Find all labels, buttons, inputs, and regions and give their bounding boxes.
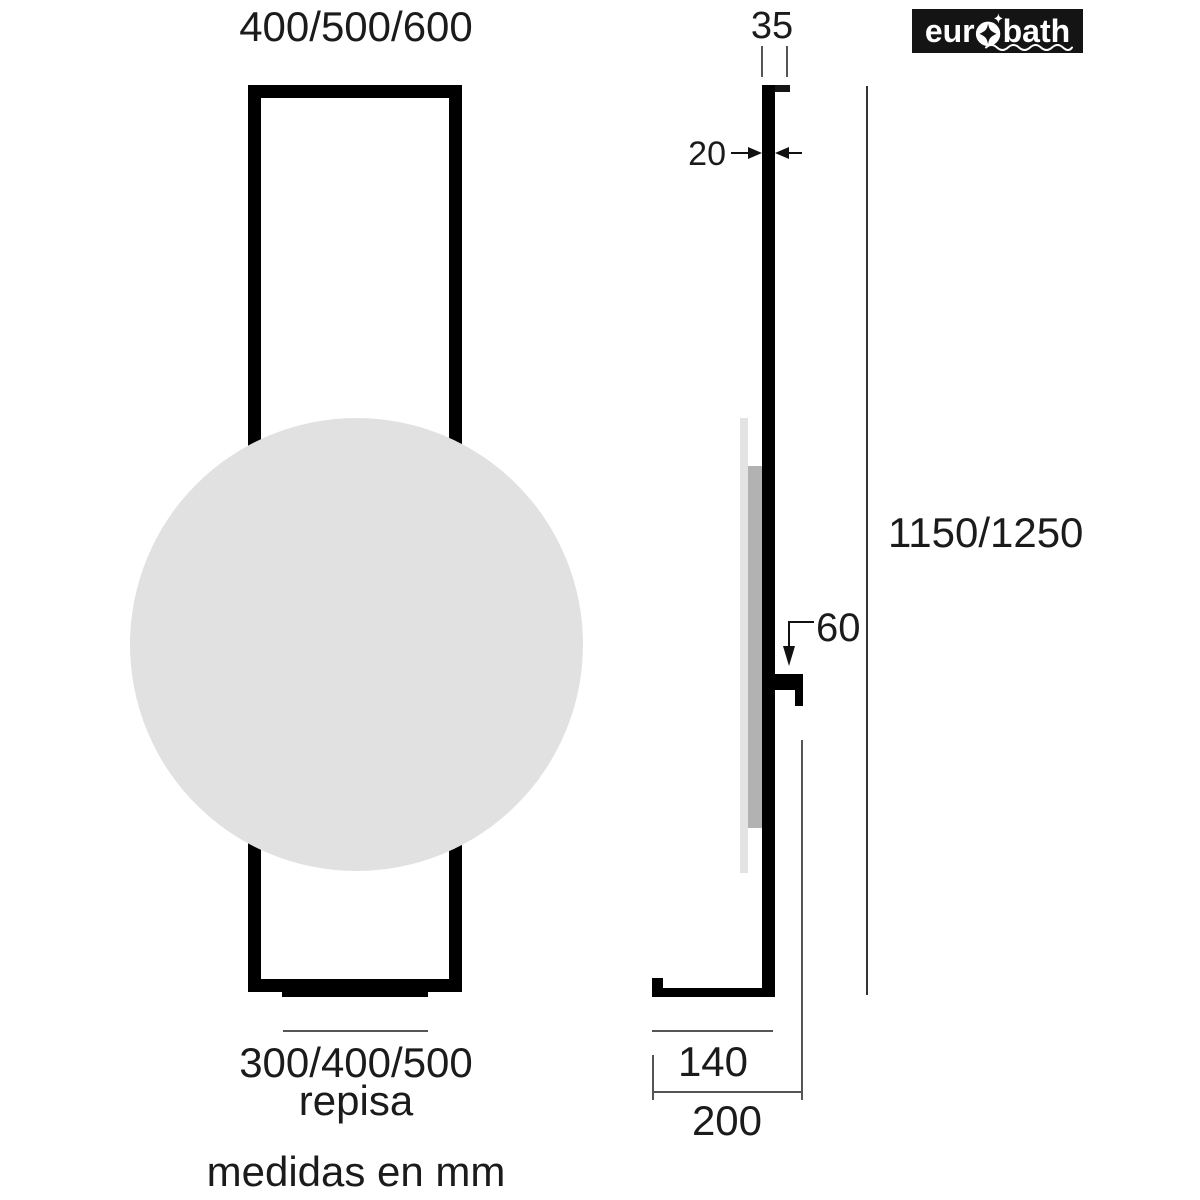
foot-depth-dimension-label: 140 [663, 1041, 763, 1083]
wall-hook-vertical [795, 690, 803, 706]
technical-drawing-canvas: 400/500/600 300/400/500 repisa medidas e… [0, 0, 1200, 1200]
profile-thickness-dimension-label: 20 [646, 137, 726, 171]
top-depth-dimension-label: 35 [722, 7, 822, 45]
profile-side-bar [762, 85, 775, 997]
shelf-name-label: repisa [156, 1080, 556, 1122]
total-depth-dimension-line [653, 1091, 802, 1093]
eurobath-logo: eur bath [912, 9, 1083, 53]
units-note-label: medidas en mm [156, 1151, 556, 1193]
shelf-width-dimension-line [283, 1030, 428, 1032]
wave-underline-icon [985, 42, 1073, 51]
thickness-arrowhead-left-icon [748, 147, 762, 159]
shelf-front-bar [282, 987, 428, 997]
wall-hook-horizontal [775, 674, 803, 690]
hook-offset-leader-line [789, 621, 814, 623]
top-depth-extension-line-right [786, 46, 788, 77]
mirror-side-profile [740, 418, 748, 873]
hook-offset-dimension-label: 60 [816, 608, 861, 648]
hook-offset-arrowhead-icon [783, 646, 795, 666]
thickness-arrowhead-right-icon [775, 147, 789, 159]
mirror-backing-side-profile [748, 466, 762, 828]
profile-bottom-foot-lip [652, 978, 663, 997]
hook-extension-line [801, 740, 803, 1100]
mirror-width-dimension-label: 400/500/600 [156, 6, 556, 48]
thickness-arrow-line-right [789, 152, 802, 154]
total-depth-dimension-label: 200 [677, 1100, 777, 1142]
round-mirror [130, 418, 583, 871]
height-dimension-line [866, 86, 868, 995]
hook-offset-leader-drop [788, 621, 790, 647]
total-depth-dimension-tick [652, 1055, 654, 1100]
height-dimension-label: 1150/1250 [888, 512, 1083, 554]
logo-text-eur: eur [925, 15, 975, 47]
foot-depth-dimension-line [652, 1030, 773, 1032]
profile-bottom-foot [652, 988, 775, 997]
top-depth-extension-line-left [761, 46, 763, 77]
